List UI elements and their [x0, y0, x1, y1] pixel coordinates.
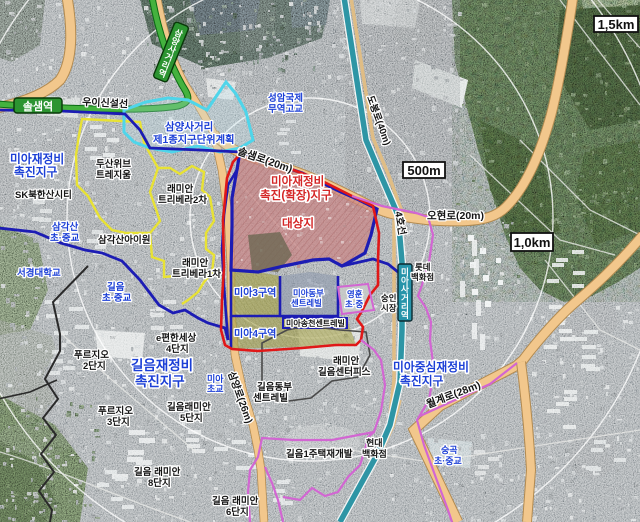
svg-text:8단지: 8단지 [148, 477, 171, 489]
svg-text:서경대학교: 서경대학교 [17, 267, 61, 279]
svg-text:시장: 시장 [381, 303, 397, 313]
svg-text:센트레빌: 센트레빌 [291, 298, 322, 308]
svg-text:삼양사거리: 삼양사거리 [165, 120, 213, 133]
svg-text:푸르지오: 푸르지오 [74, 349, 109, 361]
svg-text:초·중: 초·중 [345, 299, 363, 309]
svg-text:솔샘역: 솔샘역 [23, 99, 53, 113]
svg-text:백화점: 백화점 [362, 448, 387, 459]
svg-text:미아3구역: 미아3구역 [234, 286, 276, 299]
svg-text:무역고교: 무역고교 [268, 103, 303, 115]
svg-text:5단지: 5단지 [180, 412, 203, 424]
svg-text:대상지: 대상지 [282, 216, 314, 230]
svg-text:3단지: 3단지 [107, 416, 130, 428]
svg-text:미아동부: 미아동부 [293, 288, 324, 298]
svg-text:SK북한산시티: SK북한산시티 [15, 189, 72, 201]
svg-text:두산위브: 두산위브 [96, 158, 131, 170]
svg-text:길음센터피스: 길음센터피스 [318, 366, 371, 378]
svg-text:푸르지오: 푸르지오 [98, 405, 133, 417]
svg-text:촉진(확장)지구: 촉진(확장)지구 [260, 188, 332, 202]
svg-text:길음1주택재개발: 길음1주택재개발 [286, 448, 353, 460]
svg-text:촉진지구: 촉진지구 [135, 373, 185, 389]
svg-text:삼각산아이원: 삼각산아이원 [98, 234, 150, 246]
svg-text:트레지움: 트레지움 [96, 169, 131, 181]
svg-text:초·중교: 초·중교 [102, 292, 132, 304]
svg-text:트리베라2차: 트리베라2차 [158, 194, 207, 206]
svg-text:촉진지구: 촉진지구 [14, 165, 58, 179]
svg-text:래미안: 래미안 [333, 355, 359, 367]
svg-text:미아: 미아 [207, 373, 224, 384]
svg-text:길음래미안: 길음래미안 [167, 401, 211, 413]
svg-text:제1종지구단위계획: 제1종지구단위계획 [153, 133, 235, 146]
svg-text:6단지: 6단지 [226, 506, 249, 518]
svg-text:미아송천센트레빌: 미아송천센트레빌 [286, 318, 345, 328]
svg-text:센트레빌: 센트레빌 [253, 392, 288, 404]
svg-text:길음재정비: 길음재정비 [131, 357, 193, 373]
svg-text:미아4구역: 미아4구역 [234, 327, 276, 340]
svg-text:트리베라1차: 트리베라1차 [172, 268, 221, 280]
svg-text:길음 래미안: 길음 래미안 [212, 495, 259, 507]
svg-text:500m: 500m [407, 163, 440, 178]
svg-text:백화점: 백화점 [411, 272, 434, 282]
svg-text:성암국제: 성암국제 [268, 92, 303, 104]
svg-text:길음동부: 길음동부 [257, 381, 292, 393]
svg-text:길음: 길음 [107, 281, 125, 293]
svg-text:e편한세상: e편한세상 [156, 332, 197, 344]
svg-text:1,0km: 1,0km [514, 235, 551, 250]
svg-text:오현로(20m): 오현로(20m) [427, 209, 484, 222]
svg-text:롯데: 롯데 [415, 262, 431, 272]
svg-text:2단지: 2단지 [83, 360, 106, 372]
svg-text:촉진지구: 촉진지구 [400, 374, 444, 388]
svg-text:4단지: 4단지 [166, 343, 189, 355]
svg-text:1,5km: 1,5km [598, 17, 635, 32]
svg-text:초·중교: 초·중교 [434, 456, 462, 466]
svg-text:미아재정비: 미아재정비 [271, 174, 324, 188]
svg-text:숭인: 숭인 [381, 293, 397, 303]
svg-text:초교: 초교 [207, 384, 224, 394]
svg-text:영훈: 영훈 [347, 289, 363, 299]
svg-text:미아재정비: 미아재정비 [10, 152, 64, 166]
svg-text:미아중심재정비: 미아중심재정비 [393, 360, 469, 374]
svg-text:현대: 현대 [366, 437, 383, 448]
svg-text:래미안: 래미안 [167, 183, 193, 195]
svg-text:초·중교: 초·중교 [50, 232, 80, 244]
svg-text:길음 래미안: 길음 래미안 [134, 466, 181, 478]
svg-text:미아사거리역: 미아사거리역 [401, 266, 409, 320]
svg-text:래미안: 래미안 [182, 257, 208, 269]
svg-text:숭곡: 숭곡 [441, 445, 458, 455]
svg-text:삼각산: 삼각산 [52, 221, 78, 233]
